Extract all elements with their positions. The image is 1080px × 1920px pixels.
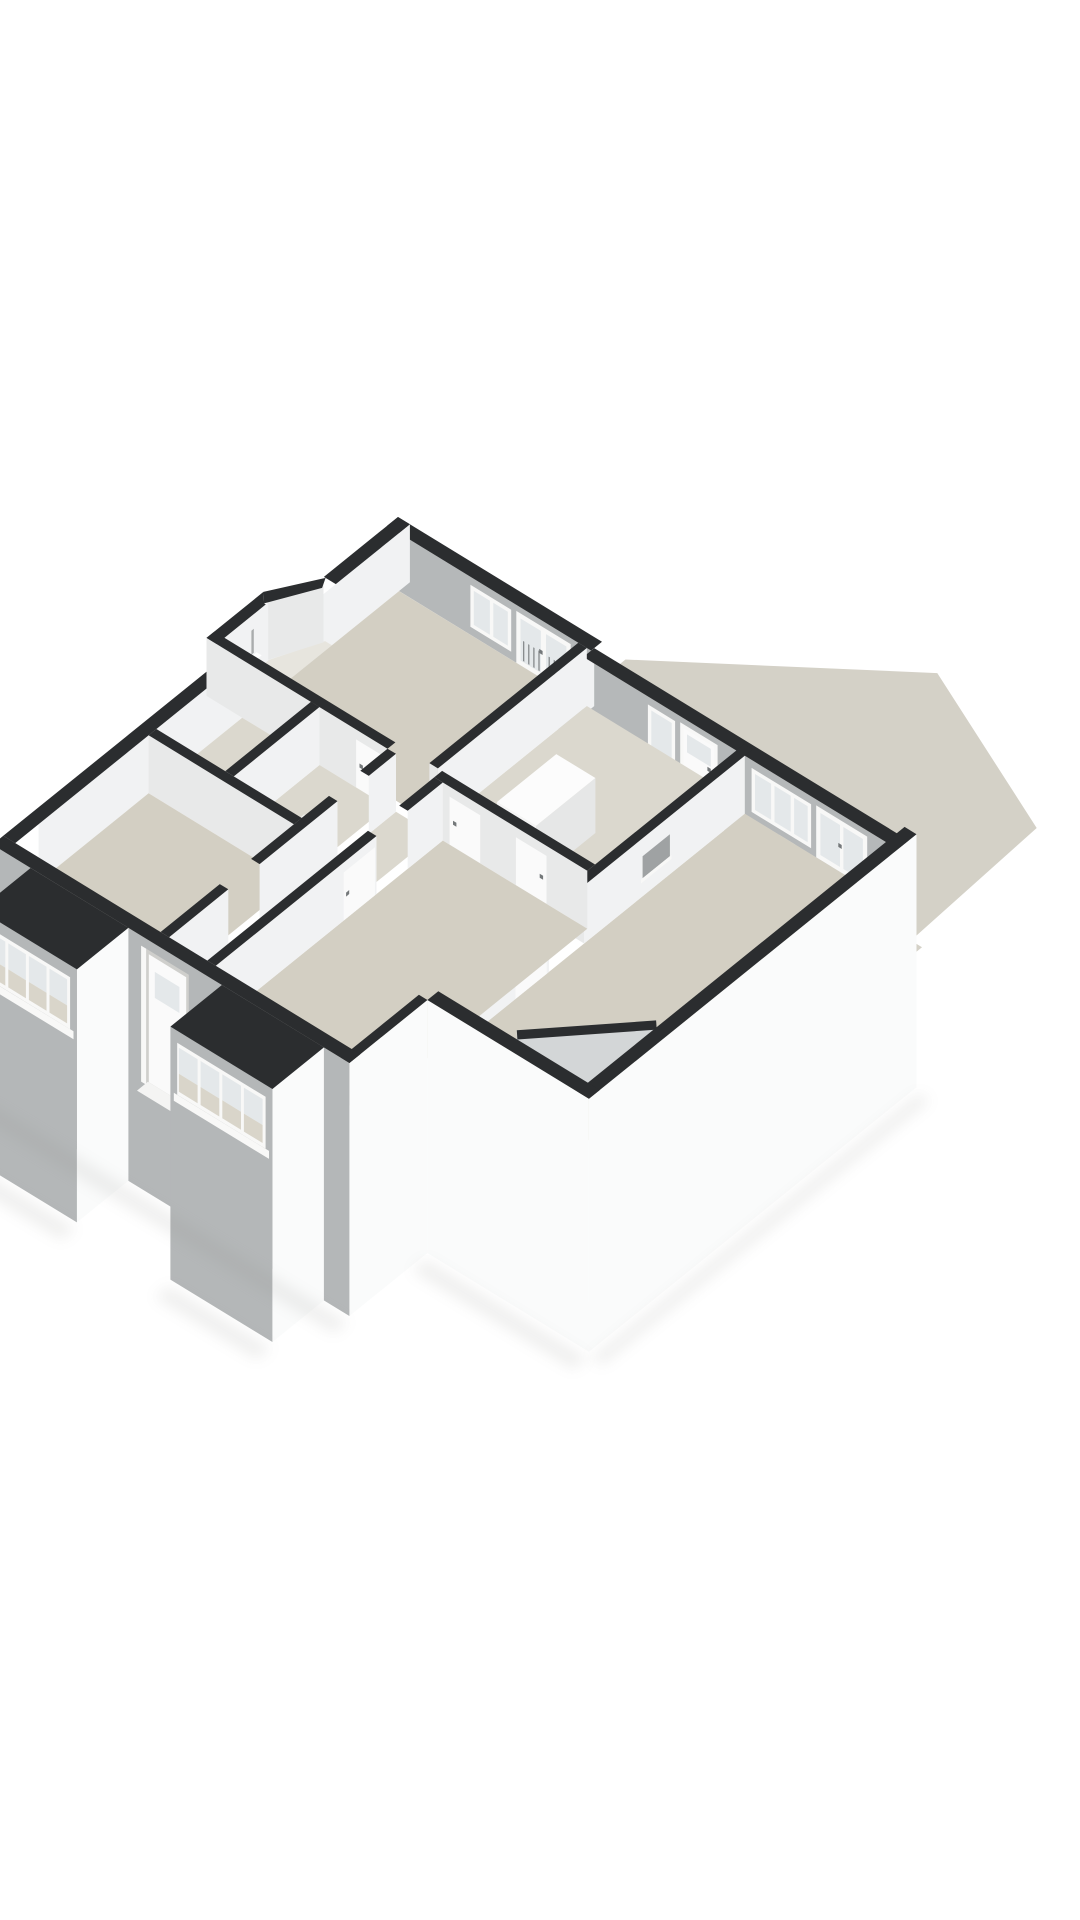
balcony-bar — [523, 641, 524, 662]
shower-head — [251, 629, 253, 655]
bay-window-middle — [170, 985, 324, 1342]
bay-window-left — [0, 868, 128, 1222]
door-jamb — [141, 946, 146, 1085]
balcony-bar — [538, 650, 539, 671]
floorplan-page — [0, 0, 1080, 1920]
balcony-bar — [533, 647, 534, 668]
balcony-bar — [528, 644, 529, 665]
floorplan-3d-render — [0, 0, 1080, 1920]
